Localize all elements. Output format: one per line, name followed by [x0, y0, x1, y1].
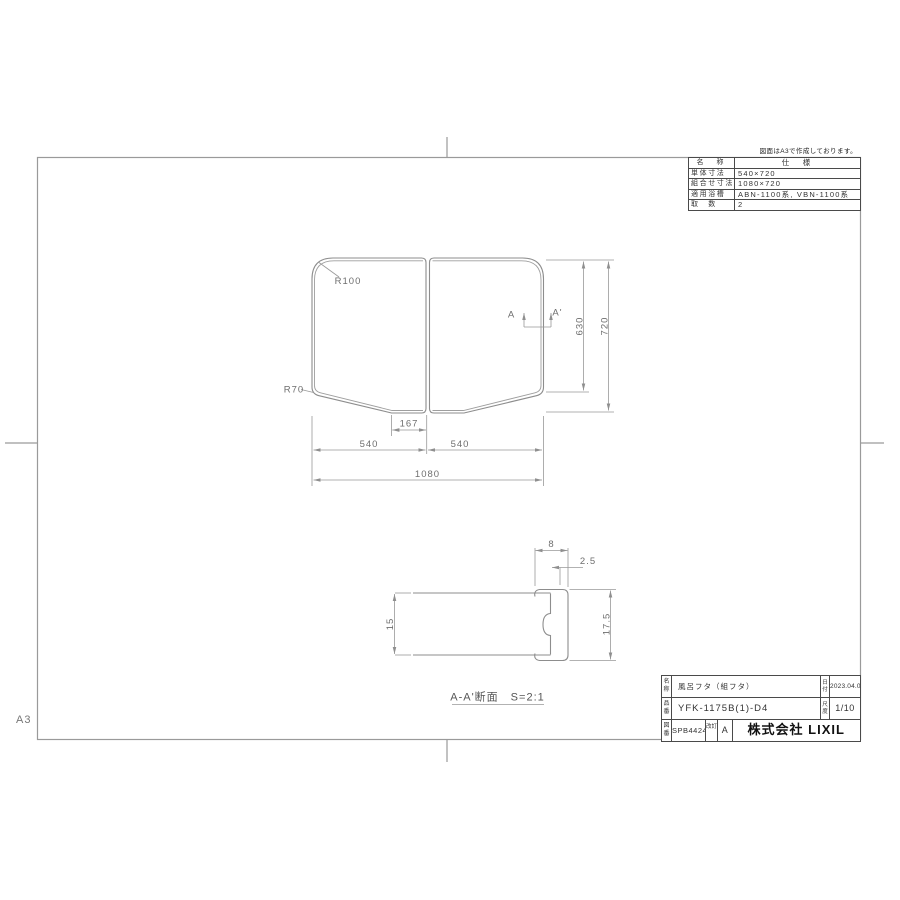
spec-row-applicable-tub: 適用浴槽 ABN-1100系, VBN-1100系	[689, 190, 860, 201]
section-a-label: A	[508, 310, 515, 321]
scale-label: 尺度	[821, 698, 830, 719]
sheet-size-label: A3	[16, 714, 31, 726]
section-cut-mark	[524, 313, 551, 327]
spec-label: 適用浴槽	[689, 190, 735, 200]
dim-17-5-label: 17.5	[602, 613, 613, 636]
company-name: 株式会社 LIXIL	[733, 720, 861, 741]
plan-extension-lines	[312, 260, 614, 486]
spec-col-name-header: 名 称	[689, 158, 735, 168]
spec-col-spec-header: 仕 様	[735, 158, 860, 168]
drawing-label: 図番	[662, 720, 672, 741]
dim-540-right-label: 540	[451, 439, 470, 450]
spec-value: ABN-1100系, VBN-1100系	[735, 190, 860, 200]
title-block: 名称 風呂フタ（組フタ） 日付 2023.04.03 品番 YFK-1175B(…	[661, 675, 861, 742]
spec-table: 名 称 仕 様 単体寸法 540×720 組合せ寸法 1080×720 適用浴槽…	[688, 157, 861, 211]
leader-r100	[319, 263, 339, 278]
spec-row-quantity: 取 数 2	[689, 200, 860, 210]
drawing-number: SPB4424	[672, 720, 706, 741]
spec-label: 単体寸法	[689, 169, 735, 179]
dim-167-label: 167	[400, 419, 419, 430]
title-row-name: 名称 風呂フタ（組フタ） 日付 2023.04.03	[662, 676, 860, 698]
dim-540-left-label: 540	[360, 439, 379, 450]
r70-label: R70	[284, 385, 304, 396]
dim-8-label: 8	[548, 539, 554, 550]
drawing-canvas: R100 R70 A A' 167 540 540 1080 630 720	[0, 0, 900, 900]
section-edge-trim-inner	[543, 594, 551, 655]
title-row-part: 品番 YFK-1175B(1)-D4 尺度 1/10	[662, 698, 860, 720]
sheet-note: 図面はA3で作成しております。	[760, 145, 857, 155]
r100-label: R100	[335, 276, 362, 287]
section-caption: A-A'断面 S=2:1	[450, 690, 545, 704]
section-view: 8 2.5 15 17.5 A-A'断面 S=2:1	[385, 539, 616, 705]
left-panel-inner-line	[315, 261, 424, 411]
section-dimension-lines	[395, 551, 611, 660]
date-value: 2023.04.03	[830, 676, 860, 697]
spec-header-row: 名 称 仕 様	[689, 158, 860, 169]
spec-value: 540×720	[735, 169, 860, 179]
right-panel-inner-line	[433, 261, 542, 411]
revision-label: 改訂	[706, 720, 718, 741]
spec-value: 2	[735, 200, 860, 210]
spec-row-unit-size: 単体寸法 540×720	[689, 169, 860, 180]
spec-label: 取 数	[689, 200, 735, 210]
dim-1080-label: 1080	[415, 469, 440, 480]
revision-value: A	[718, 720, 733, 741]
spec-value: 1080×720	[735, 179, 860, 189]
dim-15-label: 15	[385, 618, 396, 631]
dim-720-label: 720	[600, 317, 611, 336]
drawing-sheet: R100 R70 A A' 167 540 540 1080 630 720	[0, 0, 900, 900]
frame-border	[38, 158, 861, 740]
spec-row-combined-size: 組合せ寸法 1080×720	[689, 179, 860, 190]
date-label: 日付	[821, 676, 830, 697]
section-edge-trim-outer	[535, 590, 568, 661]
right-panel-outline	[430, 258, 544, 413]
plan-view: R100 R70 A A' 167 540 540 1080 630 720	[284, 258, 614, 486]
title-row-drawing: 図番 SPB4424 改訂 A 株式会社 LIXIL	[662, 720, 860, 741]
name-label: 名称	[662, 676, 672, 697]
dim-630-label: 630	[575, 317, 586, 336]
section-a-prime-label: A'	[552, 308, 562, 319]
product-name: 風呂フタ（組フタ）	[672, 676, 821, 697]
dim-2-5-label: 2.5	[580, 556, 596, 567]
spec-label: 組合せ寸法	[689, 179, 735, 189]
sheet-frame	[5, 137, 884, 762]
left-panel-outline	[312, 258, 426, 413]
part-label: 品番	[662, 698, 672, 719]
part-number: YFK-1175B(1)-D4	[672, 698, 821, 719]
scale-value: 1/10	[830, 698, 860, 719]
